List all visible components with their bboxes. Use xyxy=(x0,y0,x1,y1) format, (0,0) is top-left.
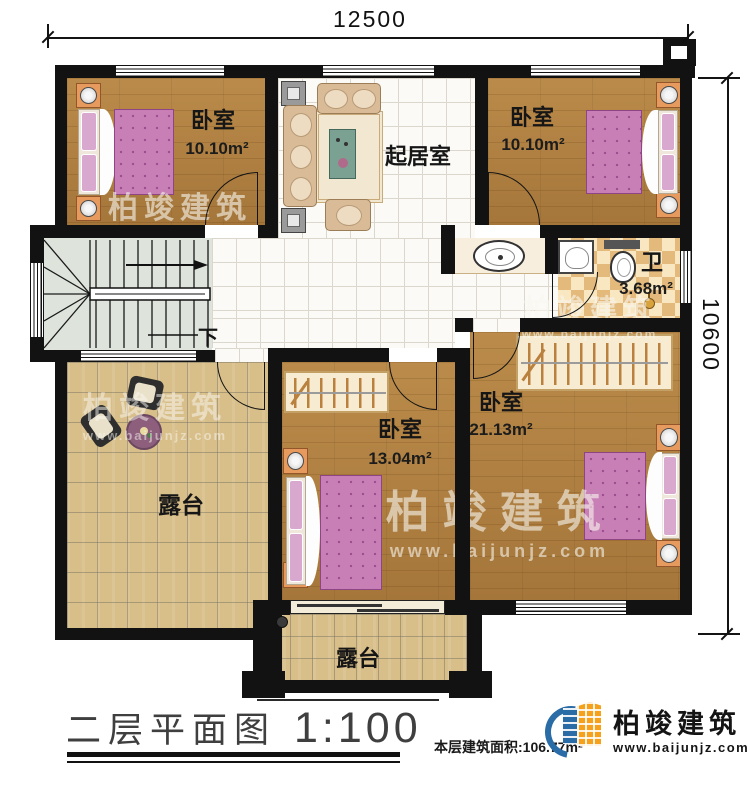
toilet-bowl xyxy=(617,258,631,277)
nightstand xyxy=(656,540,682,567)
window xyxy=(515,600,627,615)
nightstand xyxy=(283,448,308,474)
wall-segment xyxy=(265,78,278,225)
room-label: 露台 xyxy=(158,486,204,520)
room-area: 10.10m² xyxy=(185,139,248,159)
floor-doorway xyxy=(215,348,268,362)
coffee-table xyxy=(329,129,356,179)
dimension-line-right xyxy=(727,78,729,634)
lamp-icon xyxy=(660,86,678,104)
dimension-right-value: 10600 xyxy=(697,298,724,372)
plan-title: 二层平面图 xyxy=(66,702,276,753)
floor-area-label: 本层建筑面积: xyxy=(434,739,523,755)
speaker-cabinet xyxy=(281,208,306,233)
nightstand xyxy=(76,83,101,108)
window xyxy=(530,65,641,78)
chair-seat xyxy=(87,412,114,440)
stairs xyxy=(44,238,212,350)
pillow xyxy=(661,154,675,192)
bed xyxy=(584,452,646,540)
wall-segment xyxy=(282,348,389,362)
wall-segment xyxy=(455,318,473,332)
room-label: 卧室 xyxy=(378,412,422,444)
wardrobe xyxy=(516,334,673,391)
wall-segment xyxy=(253,680,482,693)
lamp-icon xyxy=(660,544,678,563)
wall-segment xyxy=(540,225,692,238)
pillow xyxy=(289,480,303,530)
chimney-flue xyxy=(671,46,687,59)
tv-screen xyxy=(287,87,300,100)
wardrobe-rod xyxy=(521,362,668,364)
room-label: 卧室 xyxy=(510,100,554,132)
title-rule xyxy=(257,699,439,701)
sink xyxy=(473,240,525,272)
pillow xyxy=(81,112,97,151)
dimension-extension xyxy=(698,77,740,79)
wall-segment xyxy=(55,362,67,640)
wall-segment xyxy=(55,628,282,640)
wall-pillar xyxy=(242,671,285,698)
washer-drum xyxy=(565,247,589,269)
logo: 柏竣建筑 www.baijunjz.com xyxy=(545,696,745,776)
tv-cabinet xyxy=(281,81,306,106)
logo-company: 柏竣建筑 xyxy=(613,702,741,741)
room-area: 10.10m² xyxy=(501,135,564,155)
lamp-icon xyxy=(287,452,304,470)
wall-segment xyxy=(197,350,215,362)
wall-segment xyxy=(627,600,692,615)
wall-segment xyxy=(520,318,692,332)
room-label: 卧室 xyxy=(191,103,235,135)
nightstand xyxy=(656,424,682,451)
terrace-table xyxy=(126,414,162,450)
sofa-cushion xyxy=(290,177,312,201)
room-area: 13.04m² xyxy=(368,449,431,469)
floor-hallway xyxy=(212,318,455,348)
sofa-two-seat xyxy=(317,83,381,114)
wardrobe xyxy=(284,371,389,413)
window xyxy=(115,65,225,78)
floor-drain xyxy=(644,298,655,309)
bed-pillows xyxy=(660,453,680,539)
title-underline-thick xyxy=(67,752,400,757)
lamp-icon xyxy=(80,200,97,217)
chair-seat xyxy=(132,382,156,404)
wardrobe-rod xyxy=(289,392,386,394)
logo-website: www.baijunjz.com xyxy=(613,740,749,755)
title: 二层平面图 1:100 xyxy=(66,702,422,753)
room-label: 露台 xyxy=(336,641,380,673)
bed-pillows xyxy=(286,477,306,585)
pillow xyxy=(289,533,303,583)
bed xyxy=(586,110,642,194)
table-item xyxy=(336,138,340,142)
terrace-drain xyxy=(276,616,288,628)
sliding-door xyxy=(290,600,445,614)
room-label: 卧室 xyxy=(479,385,523,417)
room-label: 起居室 xyxy=(385,139,451,171)
sofa-cushion xyxy=(336,205,362,226)
room-area: 3.68m² xyxy=(619,279,673,299)
stairs-down-label: 下 xyxy=(198,322,218,351)
wall-segment xyxy=(455,348,470,600)
window xyxy=(322,65,435,78)
sofa-cushion xyxy=(352,89,376,109)
floor-doorway xyxy=(473,318,520,332)
hangers xyxy=(528,343,666,385)
lamp-icon xyxy=(660,196,678,214)
wall-segment xyxy=(268,348,282,615)
bed xyxy=(320,475,382,590)
room-area: 21.13m² xyxy=(469,420,532,440)
toilet-tank xyxy=(604,240,640,249)
pillow xyxy=(663,456,677,495)
sliding-panel xyxy=(357,609,439,612)
floor-plan: 下 xyxy=(0,0,750,785)
plan-scale: 1:100 xyxy=(294,704,422,753)
logo-building-blue-icon xyxy=(563,708,577,744)
wall-segment xyxy=(258,225,278,238)
armchair xyxy=(325,199,371,231)
sliding-panel xyxy=(297,604,382,607)
table-item xyxy=(344,142,348,146)
wall-segment xyxy=(30,338,44,362)
nightstand xyxy=(76,196,101,221)
wall-segment xyxy=(55,78,67,225)
sofa-cushion xyxy=(290,113,312,137)
sink-drain xyxy=(498,255,503,260)
lamp-icon xyxy=(660,428,678,447)
wall-segment xyxy=(441,225,455,274)
window xyxy=(80,350,197,362)
bed-pillows xyxy=(658,110,678,194)
window xyxy=(680,250,692,304)
speaker-top xyxy=(287,214,300,227)
pillow xyxy=(81,154,97,193)
wall-segment xyxy=(30,238,44,262)
nightstand xyxy=(656,82,682,108)
wall-segment xyxy=(475,78,488,225)
dimension-top-value: 12500 xyxy=(285,6,455,33)
wall-segment xyxy=(545,238,558,274)
dimension-line-top xyxy=(48,37,688,39)
nightstand xyxy=(656,192,682,218)
pillow xyxy=(663,498,677,537)
wall-pillar xyxy=(449,671,492,698)
table-leaf xyxy=(147,433,152,438)
washing-machine xyxy=(558,240,594,274)
sofa-cushion xyxy=(290,145,312,169)
room-label: 卫 xyxy=(641,245,663,277)
sofa-three-seat xyxy=(283,105,317,207)
flower-vase xyxy=(338,158,348,168)
sofa-cushion xyxy=(324,89,348,109)
wall-segment xyxy=(680,304,692,615)
pillow xyxy=(661,113,675,151)
lamp-icon xyxy=(80,87,97,104)
bed-pillows xyxy=(78,109,100,195)
dimension-extension xyxy=(698,633,740,635)
bed xyxy=(114,109,174,195)
logo-building-orange-icon xyxy=(577,702,601,746)
wall-segment xyxy=(44,350,80,362)
window xyxy=(30,262,44,338)
wall-segment xyxy=(30,225,205,238)
title-underline-thin xyxy=(67,761,400,763)
